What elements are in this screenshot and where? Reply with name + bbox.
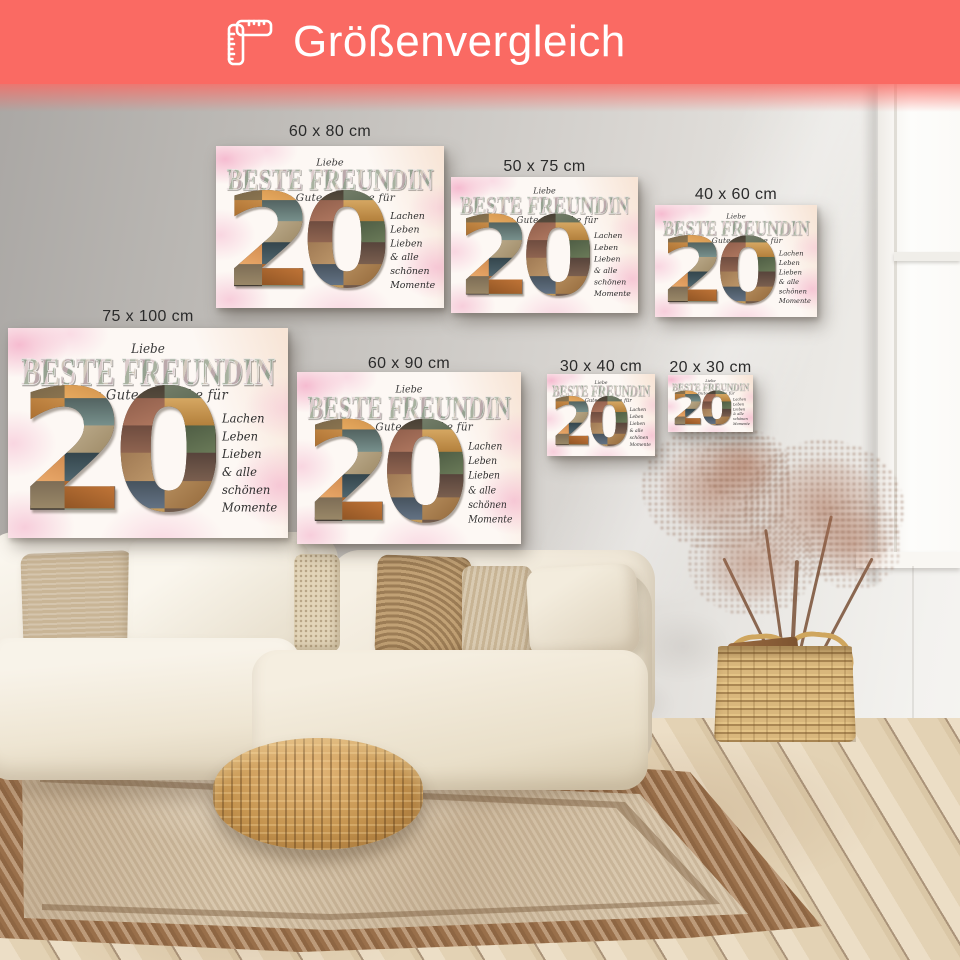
canvas-artwork: Liebe BESTE FREUNDIN Alles Gute & Danke … [547,374,655,456]
size-label: 50 x 75 cm [503,158,585,176]
dried-plant-foliage [806,500,902,590]
side-line: schönen [594,277,626,287]
side-line: Lachen [779,249,804,257]
side-line: Momente [733,422,750,426]
side-line: Lieben [779,268,802,276]
artwork-number-collage: 20 [10,368,216,536]
wicker-basket [714,646,856,742]
side-line: Leben [630,413,644,419]
dried-plant-foliage [700,430,790,500]
artwork-number-collage: 20 [218,177,386,307]
side-line: & alle [222,465,257,480]
side-line: Momente [594,289,631,299]
side-line: Lieben [468,469,500,481]
side-line: Lachen [468,440,502,452]
canvas-artwork: Liebe BESTE FREUNDIN Alles Gute & Danke … [655,205,817,317]
side-line: schönen [630,434,649,440]
side-line: & alle [390,251,418,262]
side-line: Lachen [594,231,622,241]
side-line: Momente [779,297,811,305]
canvas-print-50x75: 50 x 75 cm Liebe BESTE FREUNDIN Alles Gu… [451,177,638,313]
side-line: Lieben [594,254,621,264]
side-line: & alle [779,278,799,286]
side-line: Momente [630,441,651,447]
canvas-artwork: Liebe BESTE FREUNDIN Alles Gute & Danke … [216,146,444,308]
side-line: Lachen [733,398,746,402]
canvas-artwork: Liebe BESTE FREUNDIN Alles Gute & Danke … [451,177,638,313]
side-line: Leben [733,402,744,406]
side-line: Momente [468,513,512,525]
canvas-artwork: Liebe BESTE FREUNDIN Alles Gute & Danke … [8,328,288,538]
page-title: Größenvergleich [293,17,626,67]
pillow-beige [462,566,532,660]
canvas-print-75x100: 75 x 100 cm Liebe BESTE FREUNDIN Alles G… [8,328,288,538]
size-label: 60 x 80 cm [289,123,371,141]
side-line: & alle [733,412,744,416]
header-fade [0,84,960,112]
side-line: Lieben [630,420,645,426]
artwork-side-text: Lachen Leben Lieben & alle schönen Momen… [733,397,752,426]
side-line: schönen [222,482,270,497]
artwork-side-text: Lachen Leben Lieben & alle schönen Momen… [779,249,816,306]
canvas-print-40x60: 40 x 60 cm Liebe BESTE FREUNDIN Alles Gu… [655,205,817,317]
side-line: Momente [390,279,435,290]
size-label: 40 x 60 cm [695,186,777,204]
pillow-tan-woven [374,554,472,659]
wicker-pouf [213,738,423,850]
side-line: & alle [468,484,496,496]
canvas-print-60x90: 60 x 90 cm Liebe BESTE FREUNDIN Alles Gu… [297,372,521,544]
side-line: Lieben [390,238,422,249]
artwork-number-collage: 20 [452,203,590,312]
side-line: Lieben [733,407,745,411]
side-line: Lachen [390,210,425,221]
window-crossbar [894,252,960,261]
artwork-side-text: Lachen Leben Lieben & alle schönen Momen… [222,410,286,517]
artwork-number-collage: 20 [299,405,464,543]
side-line: schönen [779,287,807,295]
artwork-number-collage: 20 [656,226,775,316]
side-line: & alle [630,427,643,433]
header-banner: Größenvergleich [0,0,960,84]
artwork-number-collage: 20 [548,390,628,456]
side-line: schönen [390,265,429,276]
artwork-number-collage: 20 [669,386,732,432]
side-line: schönen [733,417,748,421]
pillow-bolster [526,563,641,659]
artwork-side-text: Lachen Leben Lieben & alle schönen Momen… [630,406,655,448]
side-line: Leben [222,429,258,444]
artwork-side-text: Lachen Leben Lieben & alle schönen Momen… [390,209,442,292]
side-line: Lachen [630,406,646,412]
canvas-artwork: Liebe BESTE FREUNDIN Alles Gute & Danke … [297,372,521,544]
size-comparison-image: 60 x 80 cm Liebe BESTE FREUNDIN Alles Gu… [0,0,960,960]
canvas-artwork: Liebe BESTE FREUNDIN Alles Gute & Danke … [668,375,753,432]
side-line: Momente [222,500,277,515]
side-line: Leben [390,224,419,235]
side-line: Leben [468,455,497,467]
ruler-icon [225,16,275,68]
canvas-print-60x80: 60 x 80 cm Liebe BESTE FREUNDIN Alles Gu… [216,146,444,308]
side-line: & alle [594,265,617,275]
artwork-side-text: Lachen Leben Lieben & alle schönen Momen… [468,439,519,527]
canvas-print-20x30: 20 x 30 cm Liebe BESTE FREUNDIN Alles Gu… [668,375,753,432]
pillow-speckled [294,554,340,652]
size-label: 75 x 100 cm [102,308,194,326]
canvas-print-30x40: 30 x 40 cm Liebe BESTE FREUNDIN Alles Gu… [547,374,655,456]
dried-plant-foliage [688,508,816,616]
artwork-side-text: Lachen Leben Lieben & alle schönen Momen… [594,230,637,299]
side-line: Leben [779,259,800,267]
side-line: Lachen [222,411,265,426]
size-label: 60 x 90 cm [368,355,450,373]
side-line: Lieben [222,447,262,462]
side-line: schönen [468,498,507,510]
side-line: Leben [594,242,618,252]
